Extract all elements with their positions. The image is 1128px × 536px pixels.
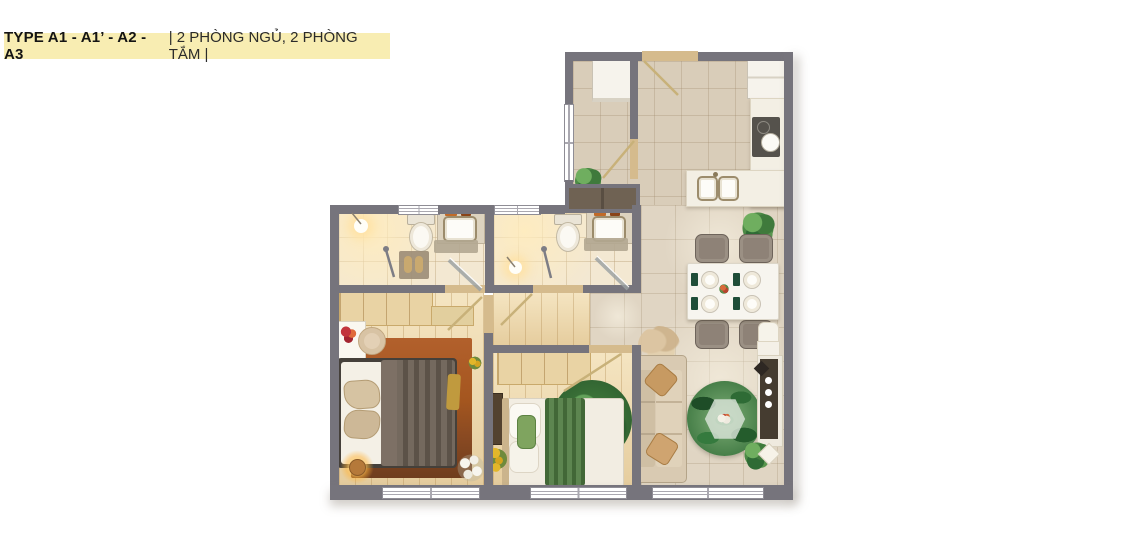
plate-setting-icon <box>743 271 761 289</box>
vanity-stool-icon <box>358 327 386 355</box>
dining-chair-icon <box>695 234 729 263</box>
window-icon <box>564 104 574 182</box>
dining-chair-icon <box>739 234 773 263</box>
bath-mat-icon <box>584 238 628 251</box>
pot-icon <box>761 133 780 152</box>
wall <box>698 52 793 61</box>
wall <box>784 52 793 500</box>
wardrobe-icon <box>497 352 591 385</box>
floorplan-canvas: TYPE A1 - A1’ - A2 - A3 | 2 PHÒNG NGỦ, 2… <box>0 0 1128 536</box>
washing-machine-icon <box>592 57 632 102</box>
hallway-wood-floor <box>493 293 590 345</box>
toilet-icon <box>556 222 580 252</box>
wall <box>583 285 641 293</box>
vanity-flowers-icon <box>340 325 357 344</box>
wall <box>330 205 339 500</box>
coffee-table-flowers-icon <box>716 412 732 426</box>
speaker-icon <box>765 377 772 384</box>
window-icon <box>494 205 541 215</box>
toilet-icon <box>409 222 433 252</box>
white-flowers-icon <box>456 452 486 484</box>
napkin-icon <box>733 273 740 286</box>
wall <box>632 345 641 485</box>
window-icon <box>652 487 764 499</box>
window-icon <box>398 205 440 215</box>
napkin-icon <box>691 297 698 310</box>
entry-door-threshold <box>642 51 698 61</box>
utility-door-threshold <box>630 139 638 179</box>
speaker-icon <box>765 401 772 408</box>
bed-pillow-icon <box>343 379 381 410</box>
speaker-icon <box>765 389 772 396</box>
bedroom2-door-threshold <box>589 345 633 353</box>
wall <box>330 205 398 214</box>
dining-table-icon <box>687 263 779 320</box>
wall <box>484 333 493 485</box>
bathroom-divider-wall <box>485 205 494 293</box>
slippers-icon <box>404 256 412 273</box>
kitchen-sink-icon <box>697 176 718 201</box>
napkin-icon <box>691 273 698 286</box>
green-pillow-icon <box>517 415 536 449</box>
lamp-base <box>349 459 366 476</box>
wall <box>493 345 589 353</box>
cooktop-burner <box>757 121 770 134</box>
blanket-fold <box>381 360 397 466</box>
bed-headboard <box>502 398 509 486</box>
kitchen-sink-icon <box>718 176 739 201</box>
master-door-threshold <box>484 295 493 333</box>
plate-setting-icon <box>701 295 719 313</box>
fridge-icon <box>747 56 785 99</box>
wall <box>339 285 445 293</box>
pendant-light-icon <box>354 219 368 233</box>
window-icon <box>530 487 627 499</box>
hall-tile-floor <box>590 293 641 345</box>
ac-shaft-icon <box>565 184 640 213</box>
plate-setting-icon <box>701 271 719 289</box>
floor-plan <box>0 0 1128 536</box>
dining-chair-icon <box>695 320 729 349</box>
wall <box>539 205 565 214</box>
wall <box>485 285 533 293</box>
plate-setting-icon <box>743 295 761 313</box>
faucet-icon <box>713 172 718 177</box>
slippers-icon <box>415 256 423 273</box>
bathroom1-door-threshold <box>445 285 485 293</box>
bathroom2-door-threshold <box>533 285 583 293</box>
wall <box>565 52 573 104</box>
sunflower-icon <box>467 355 483 371</box>
utility-partition-wall <box>630 61 638 139</box>
window-icon <box>382 487 480 499</box>
table-centerpiece-icon <box>719 283 729 295</box>
wardrobe-shelf <box>431 306 474 326</box>
pendant-light-icon <box>509 261 522 274</box>
green-blanket-icon <box>545 398 585 486</box>
wall <box>632 205 641 293</box>
napkin-icon <box>733 297 740 310</box>
yellow-throw-icon <box>446 374 461 411</box>
wall <box>565 52 642 61</box>
bath-mat-icon <box>434 240 478 253</box>
vanity-sink-icon <box>443 216 477 242</box>
